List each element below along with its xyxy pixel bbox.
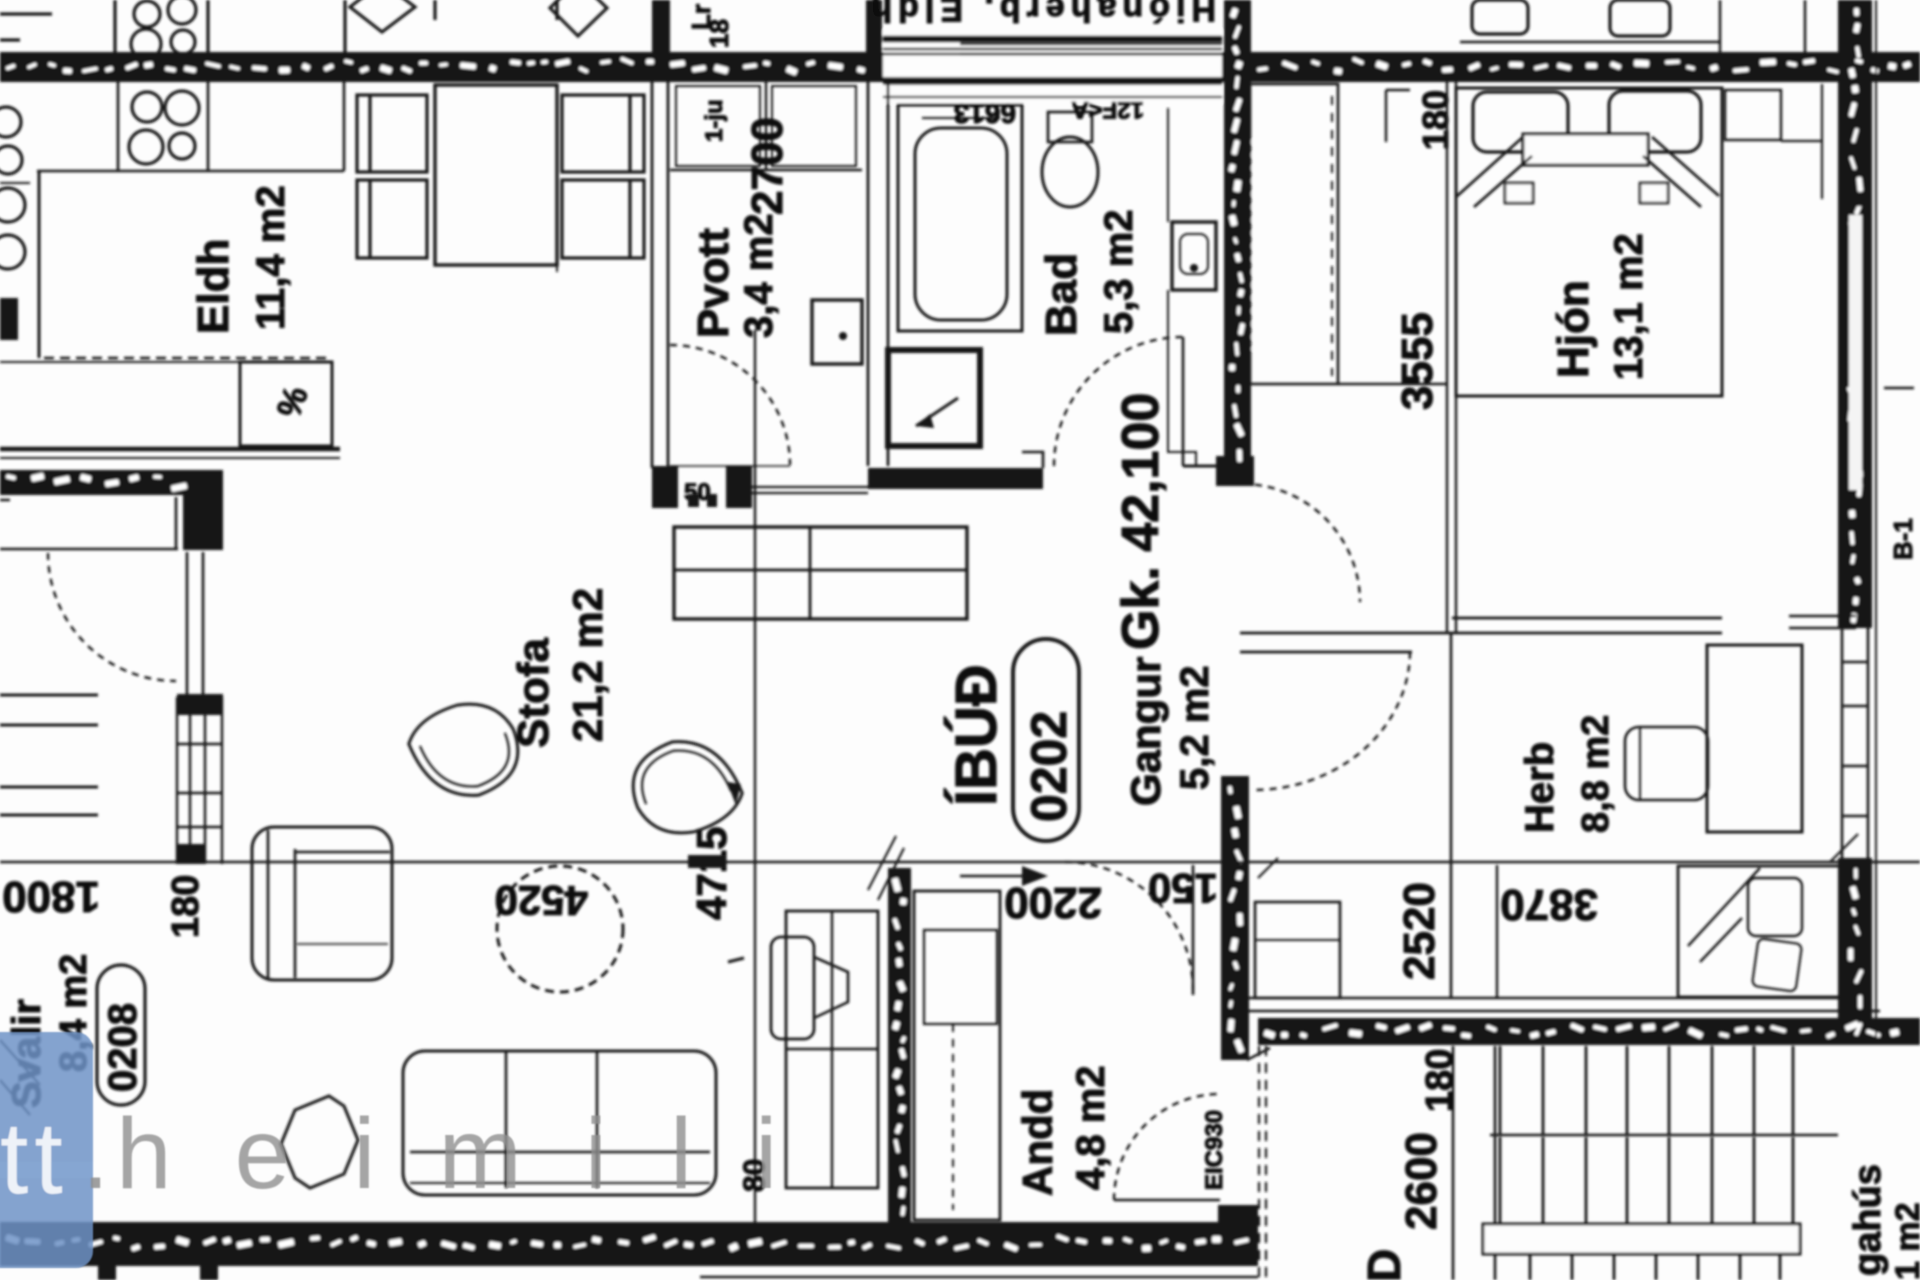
- svg-text:heimili: heimili: [116, 1098, 840, 1210]
- svg-text:180: 180: [1415, 90, 1456, 150]
- svg-text:3,4 m2: 3,4 m2: [737, 213, 781, 338]
- svg-text:0208: 0208: [101, 1003, 145, 1092]
- svg-text:3870: 3870: [1500, 880, 1598, 929]
- svg-text:5,3 m2: 5,3 m2: [1097, 209, 1141, 334]
- svg-text:18: 18: [704, 19, 734, 48]
- svg-text:4520: 4520: [495, 877, 588, 924]
- svg-text:12F<A: 12F<A: [1071, 96, 1144, 123]
- svg-text:.: .: [82, 1100, 109, 1209]
- svg-text:8,8 m2: 8,8 m2: [1575, 715, 1617, 833]
- svg-text:1800: 1800: [2, 872, 100, 921]
- svg-text:Gk. 42,100: Gk. 42,100: [1112, 393, 1170, 650]
- svg-text:Hjónaherb. Eldh: Hjónaherb. Eldh: [865, 0, 1216, 28]
- svg-text:6613: 6613: [954, 98, 1016, 129]
- svg-text:Bad: Bad: [1037, 253, 1086, 336]
- svg-text:B-1: B-1: [1888, 518, 1918, 560]
- svg-text:3555: 3555: [1393, 312, 1442, 410]
- svg-text:ÍBÚÐ: ÍBÚÐ: [944, 664, 1009, 806]
- svg-text:11,4 m2: 11,4 m2: [249, 185, 293, 330]
- svg-text:1 m2: 1 m2: [1889, 1203, 1920, 1280]
- svg-text:Andd: Andd: [1014, 1089, 1061, 1196]
- svg-text:180: 180: [1419, 1049, 1461, 1112]
- svg-text:Stofa: Stofa: [509, 637, 558, 748]
- svg-text:Eldh: Eldh: [189, 239, 238, 334]
- svg-text:150: 150: [1148, 865, 1218, 912]
- svg-text:%: %: [270, 381, 316, 422]
- svg-text:EIC930: EIC930: [1201, 1110, 1228, 1190]
- svg-text:0202: 0202: [1021, 711, 1077, 822]
- svg-text:21,2 m2: 21,2 m2: [564, 588, 611, 742]
- svg-text:4,8 m2: 4,8 m2: [1069, 1065, 1113, 1190]
- svg-text:Hjón: Hjón: [1549, 280, 1598, 378]
- svg-text:gahús: gahús: [1847, 1164, 1889, 1276]
- svg-text:2520: 2520: [1395, 882, 1444, 980]
- svg-text:2600: 2600: [1397, 1132, 1446, 1230]
- svg-text:Pvott: Pvott: [689, 228, 738, 338]
- svg-text:4715: 4715: [688, 827, 735, 920]
- svg-text:tt: tt: [0, 1101, 69, 1215]
- svg-text:Gangur: Gangur: [1122, 657, 1169, 806]
- svg-text:2700: 2700: [743, 117, 792, 215]
- svg-text:1-ju: 1-ju: [701, 99, 728, 142]
- svg-text:180: 180: [165, 875, 207, 938]
- svg-text:13,1 m2: 13,1 m2: [1607, 233, 1651, 380]
- svg-text:Herb: Herb: [1518, 742, 1562, 833]
- svg-text:2200: 2200: [1004, 878, 1102, 927]
- svg-text:D: D: [1358, 1249, 1410, 1280]
- svg-text:5,2 m2: 5,2 m2: [1173, 665, 1217, 790]
